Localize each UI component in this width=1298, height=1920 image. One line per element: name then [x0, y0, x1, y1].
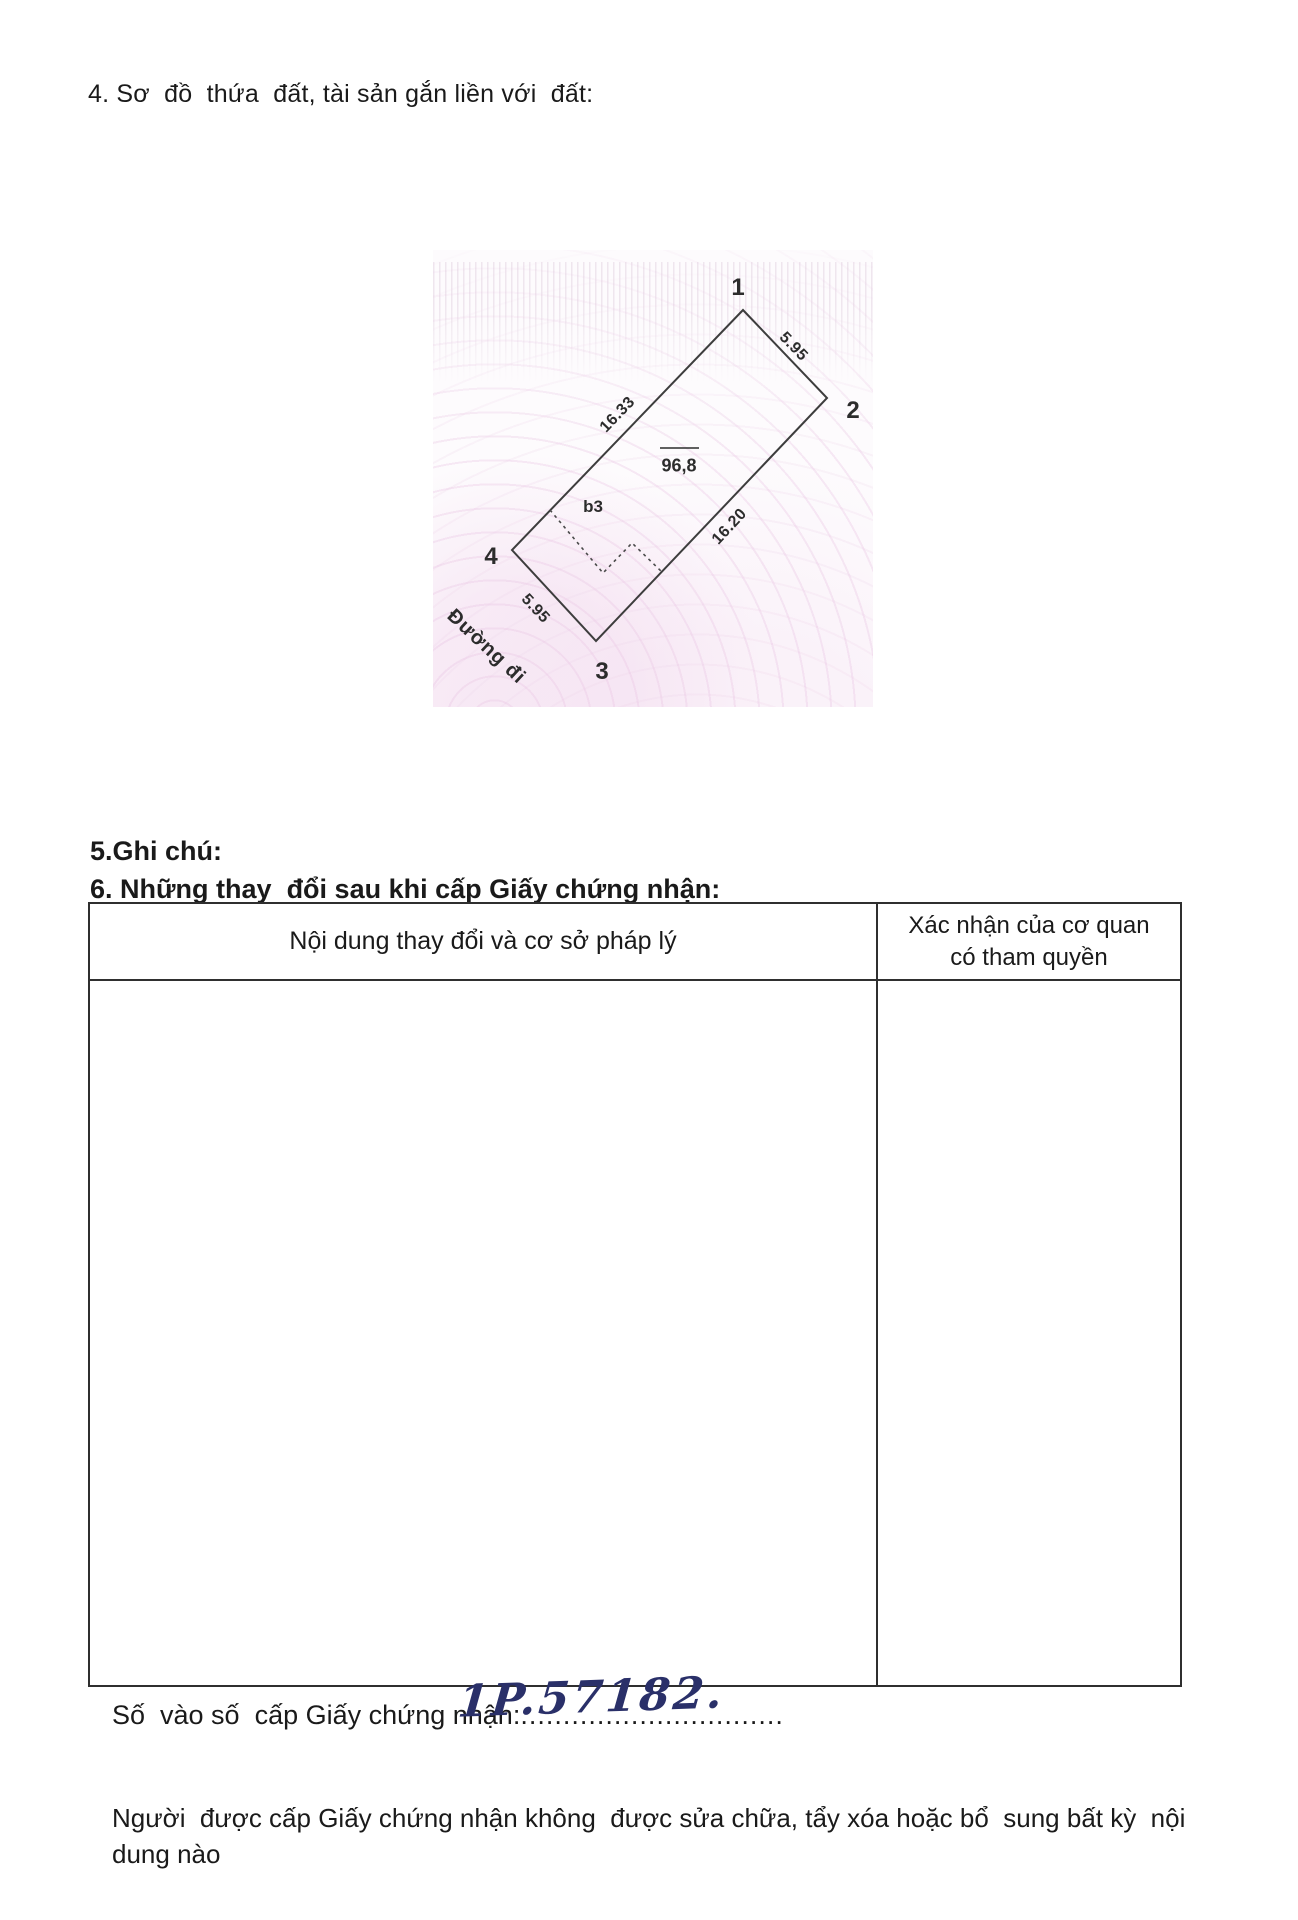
plot-diagram-drawing: [433, 250, 873, 707]
section4-title: 4. Sơ đồ thứa đất, tài sản gắn liền với …: [88, 80, 593, 109]
changes-table-col1-header: Nội dung thay đổi và cơ sở pháp lý: [90, 904, 878, 981]
changes-table-col1-body: [90, 981, 878, 1685]
plot-diagram-scan: 1 2 3 4 5.95 16.33 16.20 5.95 96,8 b3 Đư…: [433, 250, 873, 707]
corner-label-3: 3: [595, 658, 608, 686]
parcel-area-value: 96,8: [661, 456, 696, 477]
corner-label-4: 4: [484, 543, 497, 571]
legal-note-line-1: Người được cấp Giấy chứng nhận không đượ…: [112, 1800, 1237, 1872]
building-outline-dotted: [550, 510, 662, 573]
serial-number-handwritten: 1P.57182.: [456, 1667, 727, 1728]
corner-label-1: 1: [731, 274, 744, 302]
changes-table: Nội dung thay đổi và cơ sở pháp lý Xác n…: [88, 902, 1182, 1687]
certificate-page: 4. Sơ đồ thứa đất, tài sản gắn liền với …: [0, 0, 1298, 1920]
legal-note: Người được cấp Giấy chứng nhận không đượ…: [112, 1738, 1237, 1920]
section6-title: 6. Những thay đổi sau khi cấp Giấy chứng…: [90, 874, 720, 905]
col2-header-line1: Xác nhận của cơ quan: [908, 910, 1149, 942]
col2-header-line2: có tham quyền: [908, 942, 1149, 974]
changes-table-col2-body: [878, 981, 1180, 1685]
changes-table-col2-header: Xác nhận của cơ quan có tham quyền: [878, 904, 1180, 981]
building-label: b3: [583, 497, 603, 517]
corner-label-2: 2: [846, 397, 859, 425]
section5-title: 5.Ghi chú:: [90, 836, 222, 867]
